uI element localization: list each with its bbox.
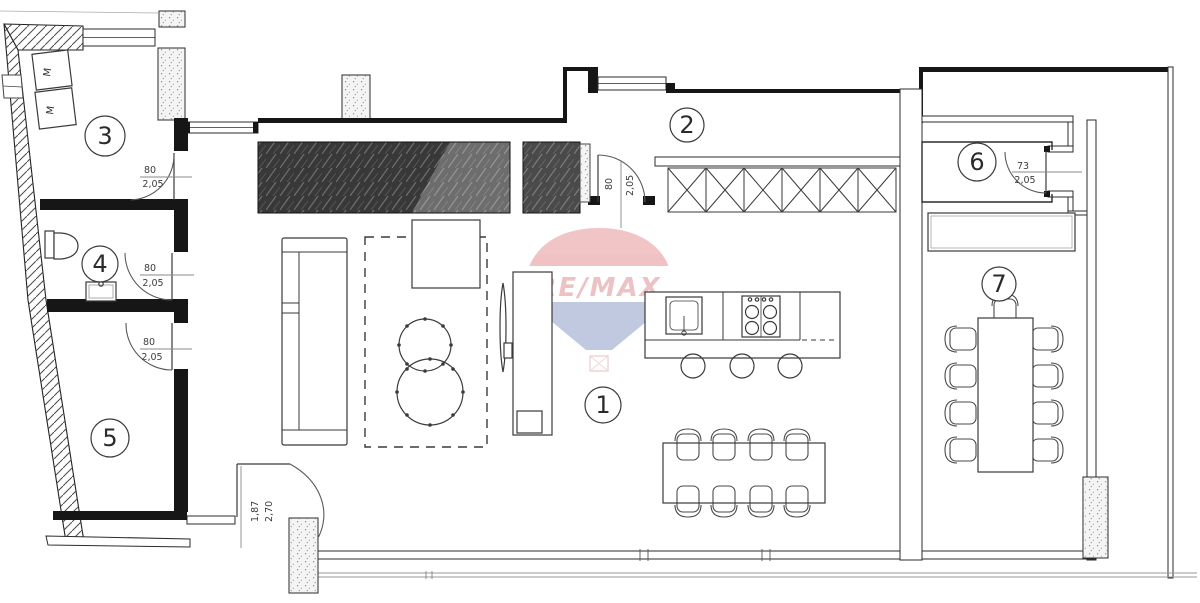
kitchen-upper-cabinets: [668, 168, 896, 212]
door-dim-height: 2,05: [142, 278, 163, 289]
coffee-table: [412, 220, 480, 288]
wall-room5-bottom: [53, 511, 187, 520]
wall-room6-top: [922, 116, 1073, 122]
door-dim-height: 2,70: [264, 501, 275, 522]
washer-label: M: [45, 105, 57, 115]
sofa: [282, 238, 347, 445]
washing-machines: M M: [32, 50, 76, 129]
door-dim-height: 2,05: [142, 179, 163, 190]
door-dim-width: 80: [604, 178, 615, 190]
wall-bottom-main: [318, 551, 900, 559]
tv-screen-icon: [500, 283, 506, 372]
tv-cabinet: [513, 272, 552, 435]
door-dim-width: 80: [144, 263, 156, 274]
built-in-wardrobe: [258, 142, 590, 213]
wall-bottom-room7: [922, 551, 1096, 559]
floor-plan: RE/MAX: [0, 0, 1200, 603]
wall-right-outer: [1168, 67, 1173, 578]
room-label-4: 4: [92, 250, 107, 278]
room-label-6: 6: [969, 148, 984, 176]
door-dim-width: 73: [1017, 161, 1029, 172]
wall-kitchen-divider: [900, 89, 922, 560]
watermark-text: RE/MAX: [536, 273, 661, 303]
wall-top-a: [258, 118, 567, 123]
door-dim-width: 1,87: [250, 501, 261, 522]
wall-step: [563, 68, 567, 123]
tv-mount: [504, 343, 512, 358]
washbasin-icon: [86, 282, 116, 301]
door-dim-width: 80: [143, 337, 155, 348]
door-dim-height: 2,05: [625, 175, 636, 196]
room-label-5: 5: [102, 424, 117, 452]
wall-hall-1: [174, 118, 188, 151]
wall-room3-room4: [40, 199, 188, 210]
threshold: [187, 516, 235, 524]
wall-kitchen-top: [655, 157, 900, 166]
door-dim-height: 2,05: [1014, 175, 1035, 186]
door-dim-height: 2,05: [141, 352, 162, 363]
terrace-table: [978, 318, 1033, 472]
wall-room4-room5: [47, 299, 188, 312]
room7-wardrobe: [928, 213, 1075, 251]
washer-label: M: [42, 67, 54, 77]
room-label-1: 1: [595, 391, 610, 419]
wall-hall-4: [174, 369, 188, 512]
room-label-7: 7: [991, 270, 1006, 298]
door-dim-width: 80: [144, 165, 156, 176]
wall-top-c: [919, 67, 1172, 72]
wall-top-b: [666, 89, 922, 93]
floor-plan-drawing: RE/MAX: [0, 0, 1200, 603]
room-label-3: 3: [97, 122, 112, 150]
room-label-2: 2: [679, 111, 694, 139]
